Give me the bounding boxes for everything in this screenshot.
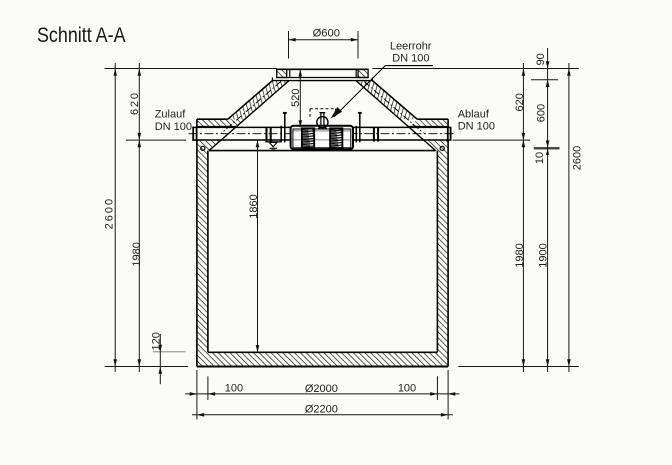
svg-text:520: 520 [290,89,302,107]
svg-text:Schnitt A-A: Schnitt A-A [37,23,126,47]
svg-text:620: 620 [514,93,526,111]
svg-text:10: 10 [534,152,546,164]
svg-text:600: 600 [536,104,548,122]
svg-text:1900: 1900 [538,243,550,267]
svg-text:620: 620 [129,93,141,115]
svg-text:Ø2200: Ø2200 [305,404,338,416]
svg-text:Ablauf: Ablauf [458,109,490,121]
svg-text:Ø600: Ø600 [313,28,340,40]
svg-text:DN 100: DN 100 [458,121,495,133]
svg-text:100: 100 [398,383,416,395]
svg-text:Leerrohr: Leerrohr [390,40,432,52]
svg-text:Zulauf: Zulauf [155,108,187,120]
svg-text:90: 90 [535,53,547,65]
svg-text:DN 100: DN 100 [155,121,192,133]
svg-text:100: 100 [225,383,243,395]
svg-text:1980: 1980 [514,243,526,267]
svg-text:1980: 1980 [131,242,143,266]
svg-text:120: 120 [150,332,162,350]
svg-text:2600: 2600 [572,146,584,170]
svg-text:DN 100: DN 100 [392,53,429,65]
svg-text:1860: 1860 [248,194,260,218]
svg-text:Ø2000: Ø2000 [305,383,338,395]
